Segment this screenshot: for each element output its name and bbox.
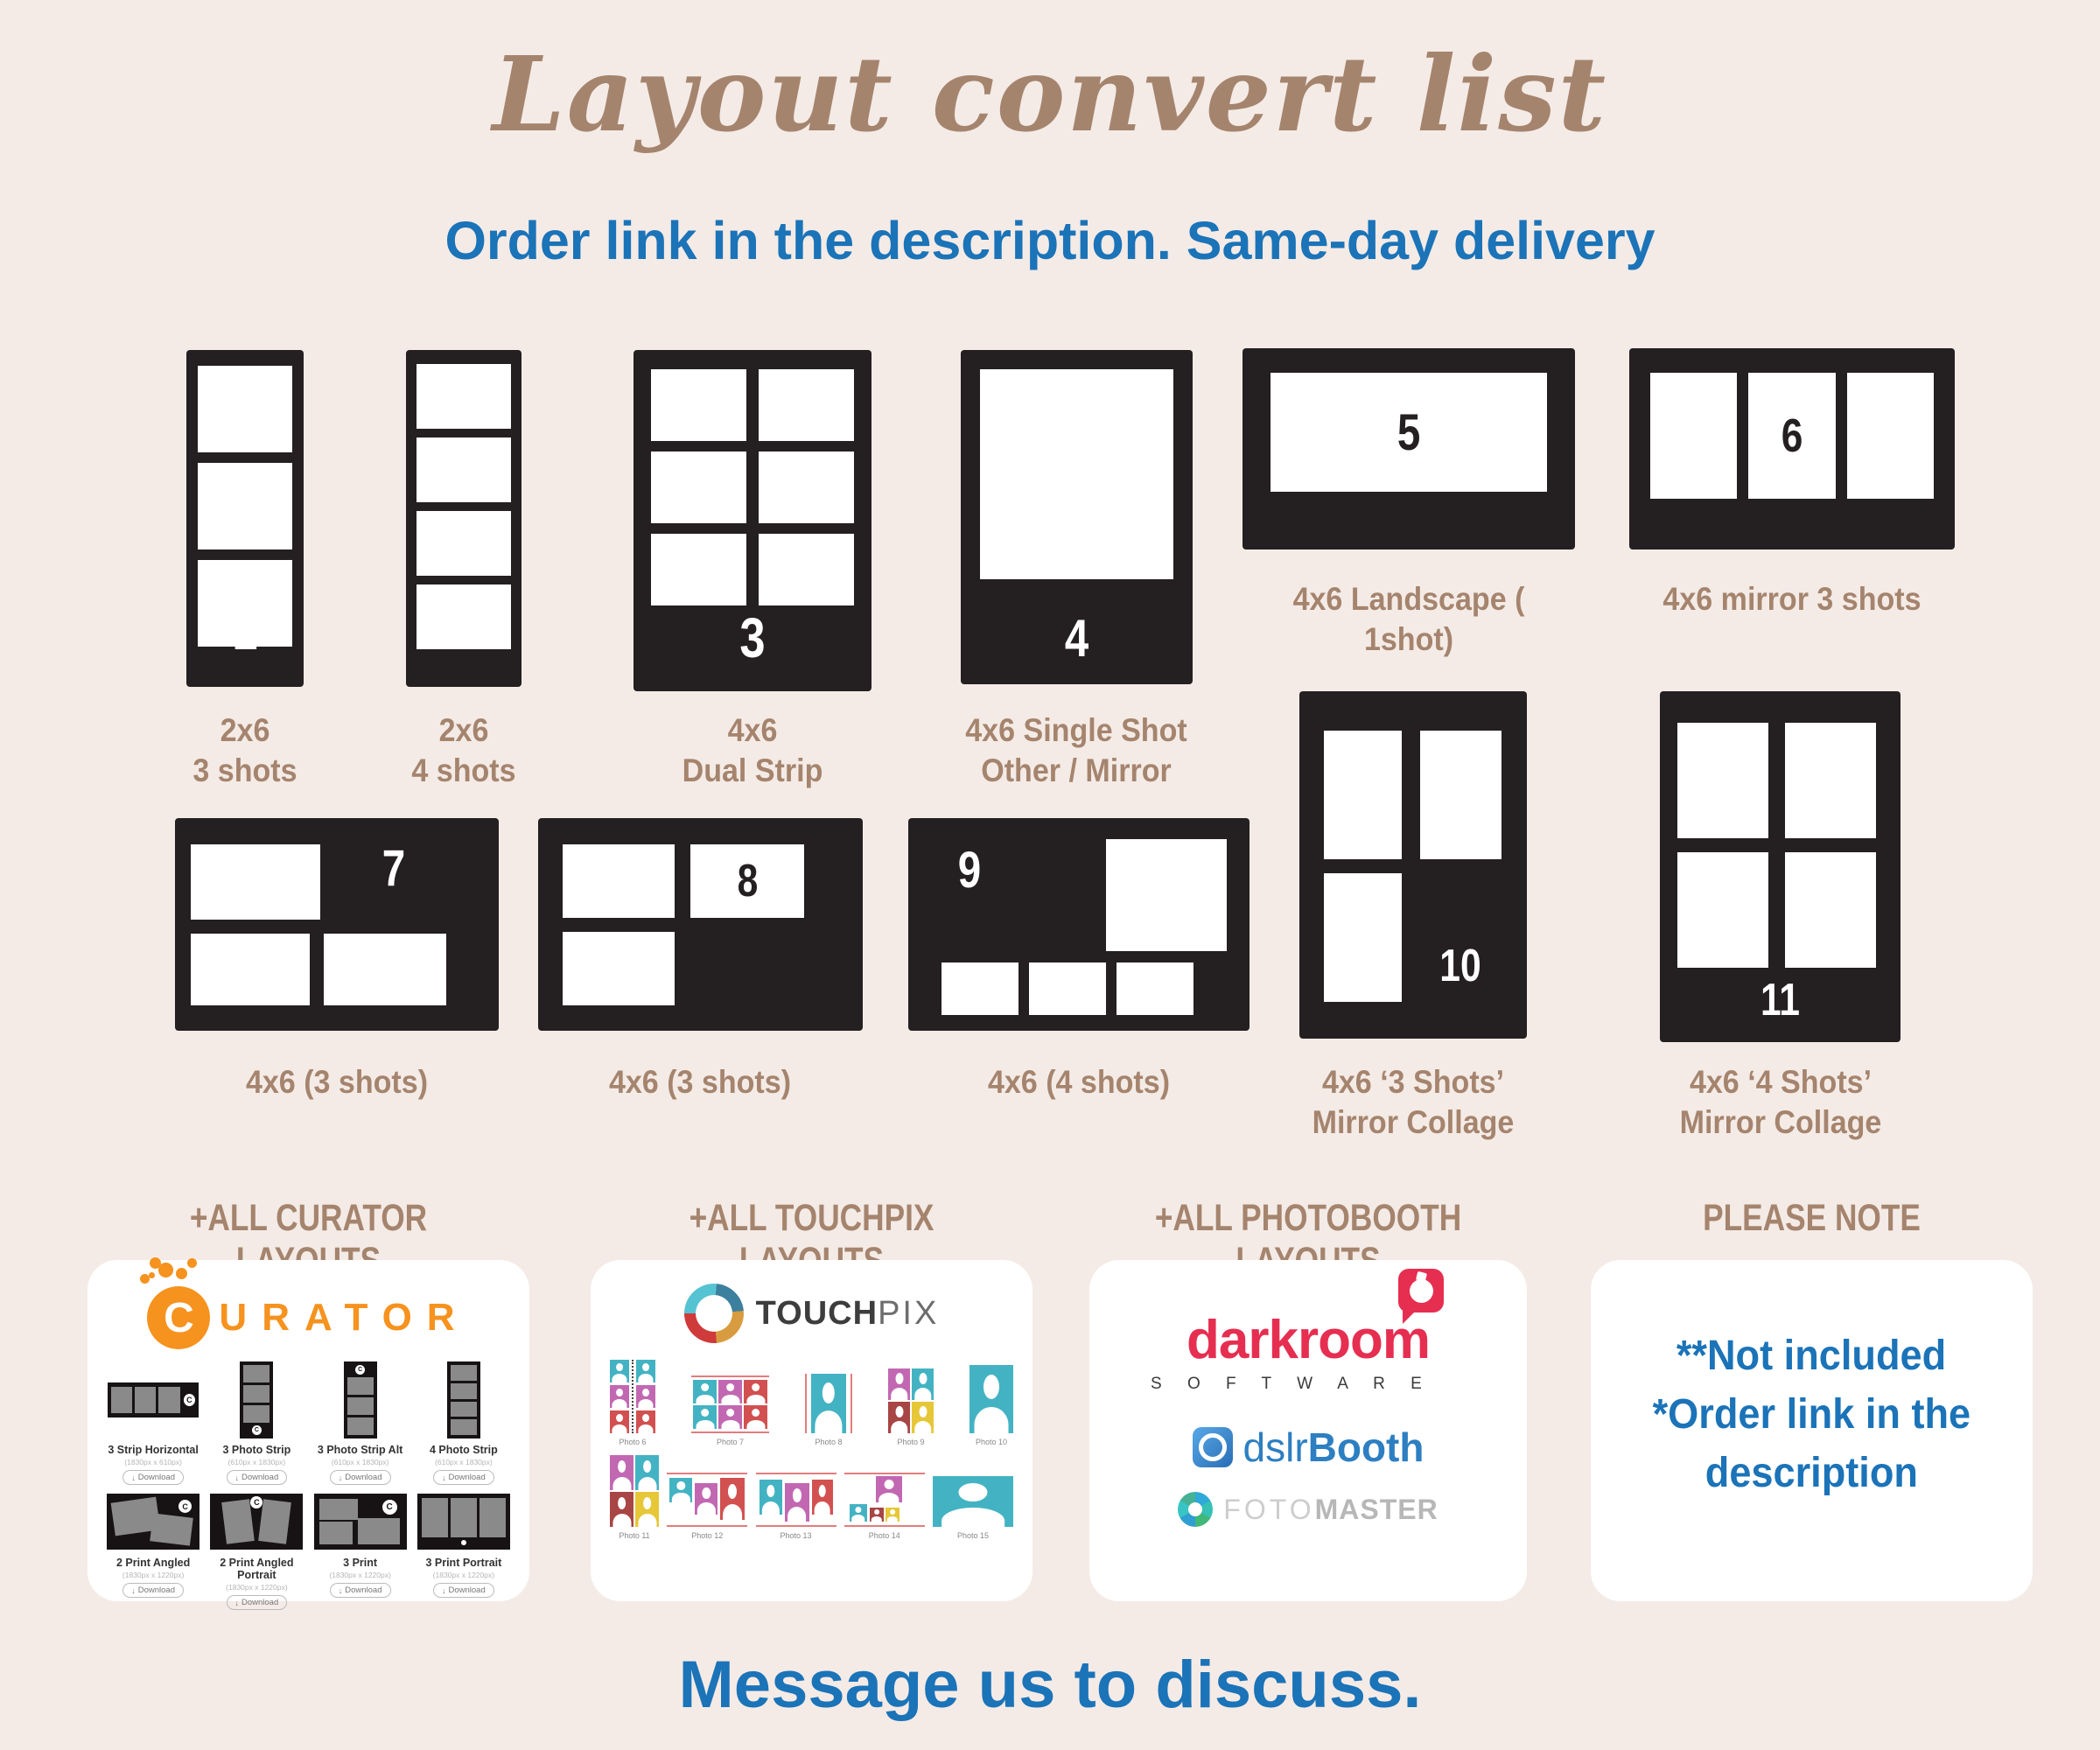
item-dims: (610px x 1830px) <box>416 1458 512 1466</box>
photo-placeholder <box>1847 373 1934 499</box>
curator-layout-item: 3 Print Portrait (1830px x 1220px) ↓Down… <box>416 1490 512 1610</box>
layout-card-10: 10 <box>1299 691 1527 1039</box>
photo-placeholder <box>563 844 675 918</box>
layout-label-11: 4x6 ‘4 Shots’ Mirror Collage <box>1660 1062 1901 1143</box>
download-button: ↓Download <box>227 1595 288 1610</box>
touchpix-layout-item: Photo 14 <box>844 1473 925 1540</box>
curator-layout-item: C 3 Photo Strip (610px x 1830px) ↓Downlo… <box>208 1360 304 1485</box>
curator-card: C URATOR C 3 Strip Horizontal (1830px x … <box>87 1260 529 1601</box>
label-line: 4x6 Single Shot <box>948 710 1205 751</box>
layout-thumbnail <box>933 1476 1013 1527</box>
button-label: Download <box>345 1585 381 1595</box>
layout-label-8: 4x6 (3 shots) <box>579 1062 821 1102</box>
darkroom-wordmark: darkroom <box>1186 1310 1430 1370</box>
thumb-caption: Photo 10 <box>976 1438 1007 1446</box>
download-icon: ↓ <box>131 1473 136 1482</box>
photo-placeholder <box>1650 373 1737 499</box>
photo-placeholder <box>198 463 292 549</box>
layout-thumbnail <box>610 1360 655 1433</box>
flyer-page: Layout convert list Order link in the de… <box>0 0 2100 1750</box>
photo-placeholder <box>980 369 1173 579</box>
layout-label-5: 4x6 Landscape ( 1shot) <box>1248 579 1570 660</box>
photo-placeholder <box>191 934 310 1005</box>
subtitle: Order link in the description. Same-day … <box>0 210 2100 271</box>
curator-layout-item: C 2 Print Angled Portrait (1830px x 1220… <box>208 1490 304 1610</box>
layout-card-9: 9 <box>908 818 1249 1031</box>
print-thumbnail <box>417 1494 510 1550</box>
touchpix-layout-item: Photo 9 <box>888 1368 934 1446</box>
layout-number: 4 <box>982 608 1172 668</box>
touchpix-logo: TOUCHPIX <box>606 1276 1017 1351</box>
photo-placeholder <box>324 934 446 1005</box>
item-dims: (1830px x 1220px) <box>105 1571 201 1579</box>
button-label: Download <box>449 1585 486 1595</box>
label-line: 2x6 <box>144 710 346 751</box>
layout-label-2: 2x6 4 shots <box>363 710 564 791</box>
layout-card-1: 1 <box>186 350 304 687</box>
thumb-caption: Photo 6 <box>619 1438 646 1446</box>
curator-layout-item: C 3 Print (1830px x 1220px) ↓Download <box>312 1490 409 1610</box>
thumb-caption: Photo 15 <box>957 1531 989 1540</box>
dslrbooth-camera-icon <box>1193 1427 1233 1467</box>
photo-placeholder <box>416 364 511 429</box>
item-name: 3 Photo Strip <box>208 1444 304 1456</box>
label-line: 4x6 ‘4 Shots’ <box>1660 1062 1901 1102</box>
note-section-header: PLEASE NOTE <box>1630 1197 1992 1240</box>
item-name: 3 Print <box>312 1557 409 1569</box>
label-line: 4x6 <box>647 710 857 751</box>
note-line: *Order link in the <box>1653 1385 1971 1444</box>
download-button: ↓Download <box>122 1470 184 1485</box>
curator-c-icon: C <box>355 1365 365 1375</box>
layout-card-7: 7 <box>175 818 499 1031</box>
item-name: 3 Strip Horizontal <box>105 1444 201 1456</box>
photo-placeholder <box>759 451 854 523</box>
layout-card-4: 4 <box>961 350 1193 684</box>
layout-card-2: 2 <box>406 350 521 687</box>
curator-wordmark: URATOR <box>219 1296 469 1340</box>
thumb-caption: Photo 13 <box>780 1531 811 1540</box>
print-thumbnail: C <box>210 1494 303 1550</box>
curator-c-icon: C <box>147 1286 210 1349</box>
photo-placeholder <box>1116 962 1193 1015</box>
darkroom-software-label: S O F T W A R E <box>1089 1375 1527 1394</box>
note-card: **Not included *Order link in the descri… <box>1591 1260 2033 1601</box>
thumb-caption: Photo 9 <box>897 1438 924 1446</box>
item-name: 3 Photo Strip Alt <box>312 1444 409 1456</box>
layout-thumbnail <box>969 1365 1013 1433</box>
layout-number: 5 <box>1397 403 1420 462</box>
download-icon: ↓ <box>235 1473 240 1482</box>
photo-placeholder <box>651 451 746 523</box>
note-line: description <box>1705 1444 1918 1502</box>
thumb-caption: Photo 7 <box>717 1438 744 1446</box>
item-name: 4 Photo Strip <box>416 1444 512 1456</box>
thumb-caption: Photo 8 <box>815 1438 842 1446</box>
thumb-caption: Photo 14 <box>869 1531 900 1540</box>
label-line: 2x6 <box>363 710 564 751</box>
photo-placeholder <box>759 369 854 441</box>
layout-number: 2 <box>416 598 511 662</box>
layout-number: 7 <box>344 839 444 898</box>
photo-placeholder <box>198 366 292 452</box>
label-line: 4x6 (3 shots) <box>216 1062 458 1102</box>
label-line: 4x6 Landscape ( 1shot) <box>1248 579 1570 660</box>
button-label: Download <box>138 1585 175 1595</box>
dslrbooth-logo: dslrBooth <box>1089 1424 1527 1471</box>
layout-card-6: 6 <box>1629 348 1955 549</box>
layout-label-1: 2x6 3 shots <box>144 710 346 791</box>
photo-placeholder <box>1324 873 1402 1002</box>
photo-placeholder <box>1785 852 1876 968</box>
layout-label-3: 4x6 Dual Strip <box>647 710 857 791</box>
strip-thumbnail: C <box>344 1361 377 1438</box>
layout-thumbnail <box>756 1473 836 1527</box>
touchpix-wordmark: TOUCH <box>756 1295 878 1332</box>
fotomaster-logo: FOTOMASTER <box>1089 1492 1527 1527</box>
layout-card-8: 8 <box>538 818 863 1031</box>
photo-placeholder <box>1785 723 1876 838</box>
fotomaster-wordmark: FOTO <box>1223 1494 1314 1525</box>
download-button: ↓Download <box>330 1470 391 1485</box>
curator-c-icon: C <box>184 1394 196 1406</box>
photo-placeholder <box>1677 852 1768 968</box>
layout-card-5: 5 <box>1242 348 1575 549</box>
photo-placeholder <box>759 534 854 605</box>
photo-placeholder <box>191 844 320 920</box>
item-name: 2 Print Angled <box>105 1557 201 1569</box>
footer-message: Message us to discuss. <box>0 1647 2100 1723</box>
curator-c-icon: C <box>250 1496 262 1508</box>
button-label: Download <box>345 1473 381 1482</box>
print-thumbnail: C <box>314 1494 407 1550</box>
photobooth-card: darkroom S O F T W A R E dslrBooth FOTOM… <box>1089 1260 1527 1601</box>
photo-placeholder <box>1677 723 1768 838</box>
layout-card-11: 11 <box>1660 691 1900 1042</box>
download-icon: ↓ <box>442 1473 446 1482</box>
item-dims: (1830px x 610px) <box>105 1458 201 1466</box>
curator-c-icon: C <box>252 1425 262 1435</box>
layout-number: 8 <box>737 855 758 907</box>
page-title: Layout convert list <box>0 33 2100 155</box>
item-dims: (610px x 1830px) <box>312 1458 409 1466</box>
layout-thumbnail <box>610 1455 659 1527</box>
photo-placeholder: 8 <box>690 844 804 918</box>
layout-label-9: 4x6 (4 shots) <box>958 1062 1200 1102</box>
layout-number: 9 <box>934 841 1005 899</box>
download-icon: ↓ <box>235 1599 240 1607</box>
touchpix-layout-item: Photo 6 <box>610 1360 655 1446</box>
layout-number: 10 <box>1417 940 1503 992</box>
dslrbooth-wordmark: Booth <box>1308 1424 1424 1470</box>
curator-c-icon: C <box>382 1500 397 1515</box>
curator-logo: C URATOR <box>105 1283 512 1353</box>
label-line: 4x6 (3 shots) <box>579 1062 821 1102</box>
curator-layout-item: 4 Photo Strip (610px x 1830px) ↓Download <box>416 1360 512 1485</box>
photo-placeholder <box>416 437 511 502</box>
item-dims: (610px x 1830px) <box>208 1458 304 1466</box>
touchpix-layout-item: Photo 15 <box>933 1476 1013 1540</box>
touchpix-layout-item: Photo 11 <box>610 1455 659 1540</box>
photo-placeholder: 6 <box>1748 373 1835 499</box>
label-line: 4x6 ‘3 Shots’ <box>1292 1062 1534 1102</box>
dslrbooth-wordmark: dslr <box>1243 1424 1308 1470</box>
download-icon: ↓ <box>442 1586 446 1595</box>
download-button: ↓Download <box>122 1583 184 1598</box>
touchpix-layout-item: Photo 10 <box>969 1365 1013 1446</box>
photo-placeholder <box>651 534 746 605</box>
label-line: Dual Strip <box>647 751 857 791</box>
button-label: Download <box>241 1473 278 1482</box>
button-label: Download <box>138 1473 175 1482</box>
layout-label-4: 4x6 Single Shot Other / Mirror <box>948 710 1205 791</box>
photo-placeholder <box>1029 962 1106 1015</box>
touchpix-wordmark: PIX <box>878 1295 939 1332</box>
download-button: ↓Download <box>433 1470 494 1485</box>
fotomaster-wordmark: MASTER <box>1315 1494 1438 1525</box>
button-label: Download <box>241 1598 278 1607</box>
item-dims: (1830px x 1220px) <box>208 1583 304 1592</box>
touchpix-card: TOUCHPIX Photo 6 Photo 7 Photo 8 <box>591 1260 1032 1601</box>
item-name: 2 Print Angled Portrait <box>208 1557 304 1581</box>
label-line: Mirror Collage <box>1660 1102 1901 1143</box>
download-icon: ↓ <box>131 1586 136 1595</box>
photo-placeholder <box>1106 839 1227 951</box>
layout-number: 1 <box>197 598 293 662</box>
label-line: 3 shots <box>144 751 346 791</box>
darkroom-bulb-icon <box>1398 1269 1444 1312</box>
layout-thumbnail <box>691 1375 769 1433</box>
photo-placeholder <box>941 962 1018 1015</box>
photo-placeholder <box>1420 731 1501 859</box>
label-line: 4x6 (4 shots) <box>958 1062 1200 1102</box>
label-line: Mirror Collage <box>1292 1102 1534 1143</box>
download-button: ↓Download <box>330 1583 391 1598</box>
layout-label-6: 4x6 mirror 3 shots <box>1634 579 1950 619</box>
layout-thumbnail <box>805 1374 852 1433</box>
curator-c-icon: C <box>178 1500 192 1513</box>
touchpix-layout-item: Photo 8 <box>805 1374 852 1446</box>
curator-layout-item: C 2 Print Angled (1830px x 1220px) ↓Down… <box>105 1490 201 1610</box>
touchpix-layout-item: Photo 12 <box>667 1473 747 1540</box>
button-label: Download <box>449 1473 486 1482</box>
layout-thumbnail <box>844 1473 925 1527</box>
item-name: 3 Print Portrait <box>416 1557 512 1569</box>
curator-layout-item: C 3 Photo Strip Alt (610px x 1830px) ↓Do… <box>312 1360 409 1485</box>
layout-number: 3 <box>654 605 850 670</box>
note-line: **Not included <box>1676 1326 1946 1385</box>
photo-placeholder <box>1324 731 1402 859</box>
download-button: ↓Download <box>433 1583 494 1598</box>
item-dims: (1830px x 1220px) <box>312 1571 409 1579</box>
layout-label-10: 4x6 ‘3 Shots’ Mirror Collage <box>1292 1062 1534 1143</box>
strip-thumbnail: C <box>108 1382 199 1417</box>
layout-number: 11 <box>1682 974 1879 1026</box>
photo-placeholder: 5 <box>1270 373 1547 492</box>
layout-label-7: 4x6 (3 shots) <box>216 1062 458 1102</box>
download-button: ↓Download <box>227 1470 288 1485</box>
thumb-caption: Photo 11 <box>619 1531 649 1540</box>
photo-placeholder <box>416 511 511 576</box>
photo-placeholder <box>563 932 675 1005</box>
strip-thumbnail <box>447 1361 480 1438</box>
curator-layout-item: C 3 Strip Horizontal (1830px x 610px) ↓D… <box>105 1360 201 1485</box>
touchpix-layout-item: Photo 7 <box>691 1375 769 1446</box>
photo-placeholder <box>651 369 746 441</box>
label-line: Other / Mirror <box>948 751 1205 791</box>
layout-number: 6 <box>1781 409 1803 463</box>
item-dims: (1830px x 1220px) <box>416 1571 512 1579</box>
label-line: 4x6 mirror 3 shots <box>1634 579 1950 619</box>
thumb-caption: Photo 12 <box>691 1531 723 1540</box>
download-icon: ↓ <box>339 1586 343 1595</box>
touchpix-layout-item: Photo 13 <box>756 1473 836 1540</box>
fotomaster-aperture-icon <box>1178 1492 1213 1527</box>
label-line: 4 shots <box>363 751 564 791</box>
touchpix-ring-icon <box>684 1284 744 1343</box>
layout-thumbnail <box>888 1368 934 1433</box>
download-icon: ↓ <box>339 1473 343 1482</box>
layout-thumbnail <box>667 1473 747 1527</box>
strip-thumbnail: C <box>240 1361 273 1438</box>
layout-card-3: 3 <box>633 350 871 691</box>
darkroom-logo: darkroom S O F T W A R E <box>1089 1309 1527 1394</box>
print-thumbnail: C <box>107 1494 199 1550</box>
